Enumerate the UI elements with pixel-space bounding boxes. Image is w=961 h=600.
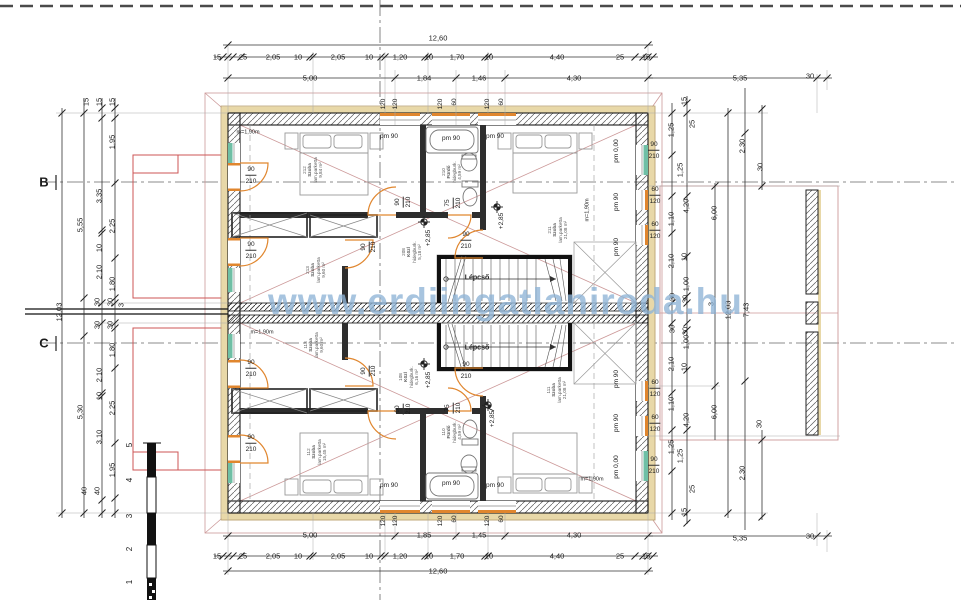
beds	[285, 133, 592, 495]
floor-plan-drawing	[0, 0, 961, 600]
floor-plan: 12,6015252,05102,05101,20101,70104,40251…	[0, 0, 961, 600]
wall-openings	[228, 113, 648, 513]
stairs-upper	[437, 255, 572, 303]
interior-walls	[240, 125, 486, 501]
stairs-lower	[437, 323, 572, 371]
insulation-band	[221, 106, 655, 520]
exterior-walls	[228, 113, 648, 513]
doors	[240, 163, 483, 463]
balcony-outline-left	[133, 155, 228, 470]
wardrobes	[232, 213, 377, 413]
attic-cross-zones	[574, 242, 636, 384]
scale-bar	[143, 443, 161, 600]
bathroom-fixtures	[426, 127, 478, 499]
